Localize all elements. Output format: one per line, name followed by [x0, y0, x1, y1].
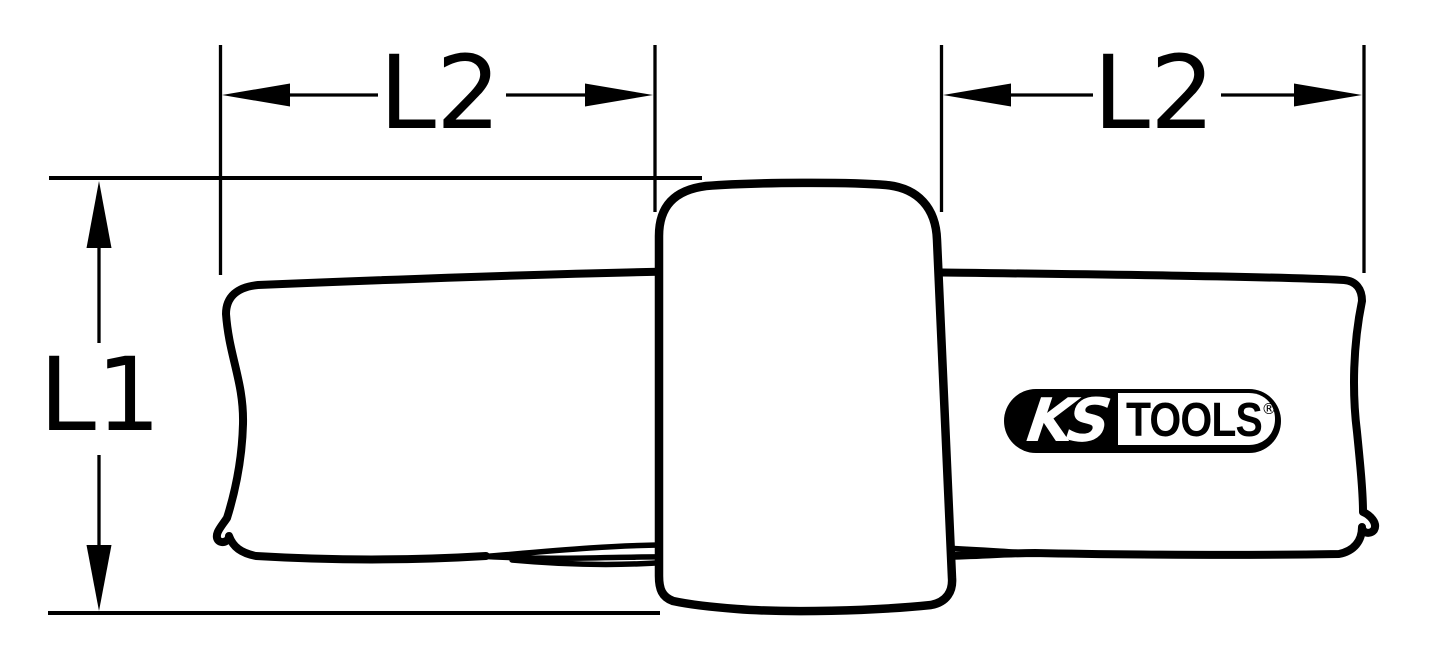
ks-tools-logo: KS TOOLS ®	[1004, 386, 1281, 456]
logo-registered-icon: ®	[1262, 400, 1277, 418]
arrow-right-icon	[1294, 84, 1362, 107]
logo-ks-text: KS	[1023, 386, 1113, 456]
l2-left-label: L2	[379, 34, 501, 153]
arrow-right-icon	[585, 84, 653, 107]
l2-dimension-right: L2	[942, 34, 1365, 273]
center-flap-outline	[659, 183, 952, 611]
technical-drawing-canvas: L2 L2 L1	[0, 0, 1444, 672]
l2-dimension-left: L2	[221, 34, 656, 275]
arrow-left-icon	[222, 84, 290, 107]
logo-tools-text: TOOLS	[1126, 394, 1262, 447]
product-dimension-diagram: L2 L2 L1	[0, 0, 1444, 672]
left-sleeve-outline	[217, 271, 700, 559]
l1-label: L1	[39, 336, 161, 455]
left-sleeve-fold-lines	[478, 545, 670, 564]
l2-right-label: L2	[1093, 34, 1215, 153]
arrow-down-icon	[87, 545, 112, 611]
arrow-left-icon	[943, 84, 1011, 107]
arrow-up-icon	[87, 181, 112, 248]
